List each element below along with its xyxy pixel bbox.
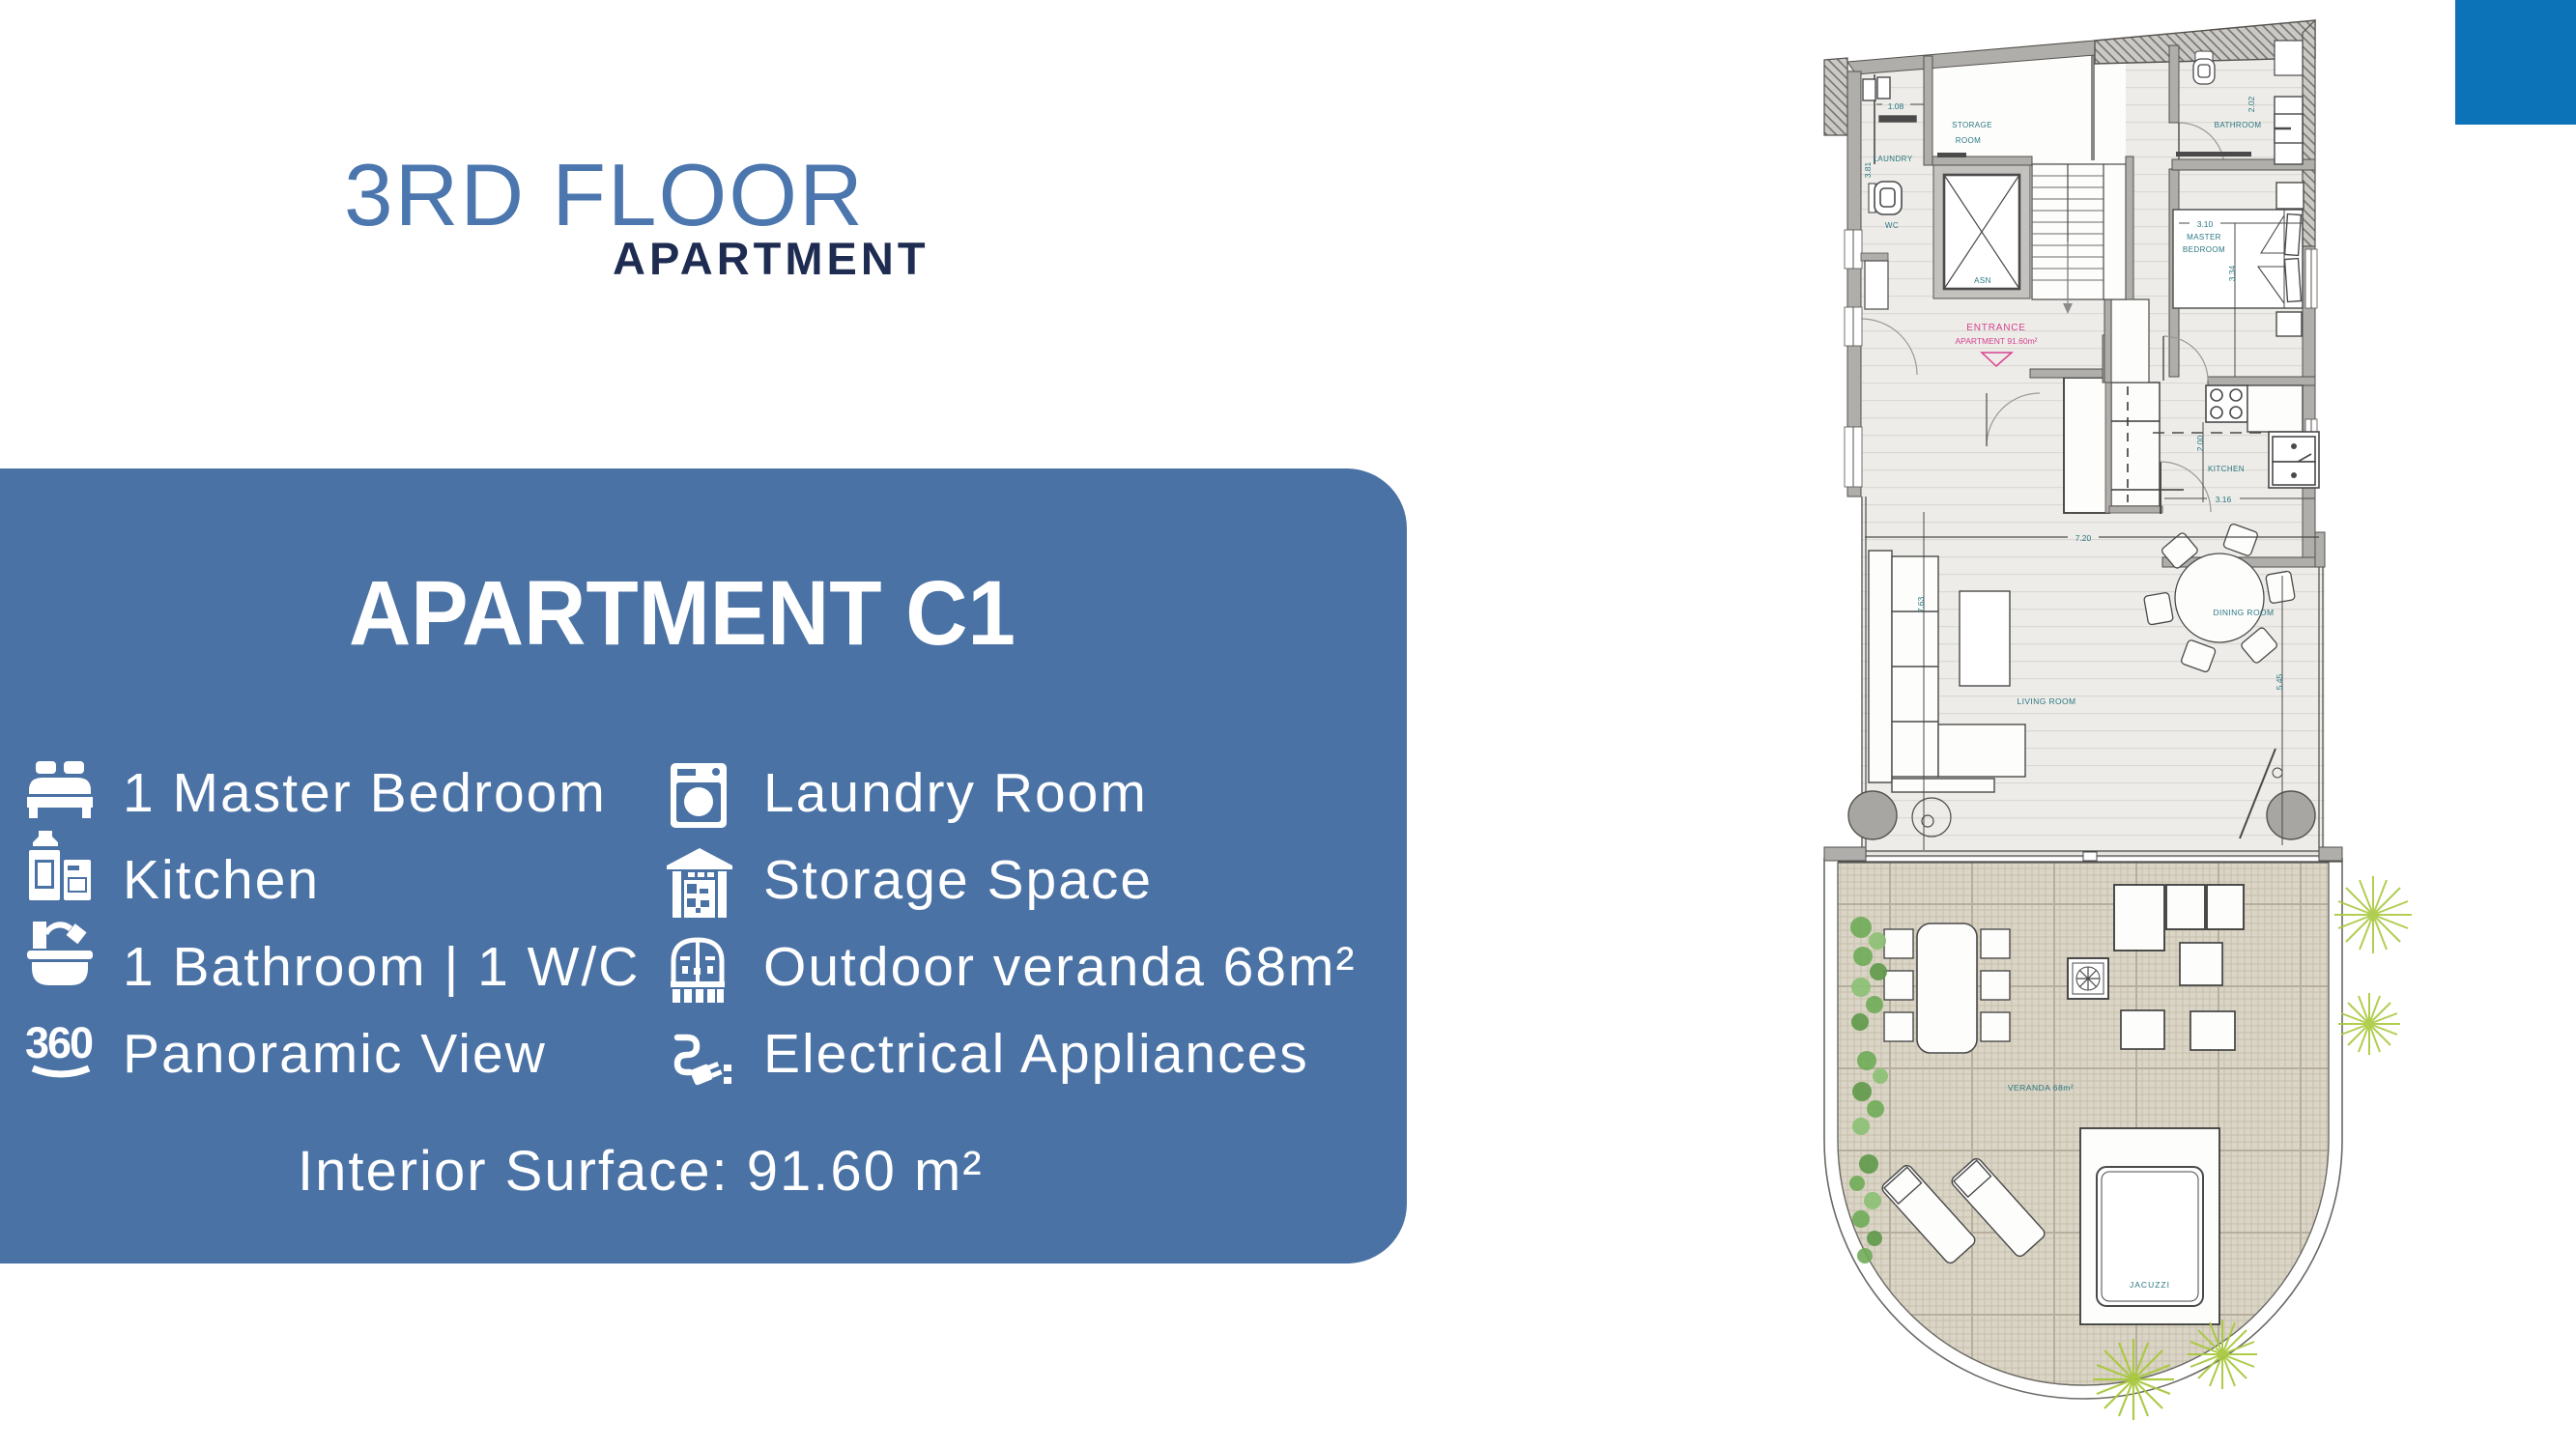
svg-text:2.00: 2.00 [2195, 435, 2205, 451]
svg-text:3.81: 3.81 [1863, 161, 1873, 178]
svg-text:BEDROOM: BEDROOM [2183, 245, 2225, 254]
svg-text:APARTMENT 91.60m²: APARTMENT 91.60m² [1955, 336, 2037, 346]
svg-text:2.02: 2.02 [2247, 96, 2256, 112]
svg-text:LAUNDRY: LAUNDRY [1874, 155, 1913, 163]
svg-text:7.20: 7.20 [2075, 533, 2092, 543]
svg-text:3.16: 3.16 [2216, 495, 2232, 504]
svg-text:WC: WC [1885, 221, 1899, 230]
svg-text:MASTER: MASTER [2187, 233, 2221, 241]
svg-text:VERANDA 68m²: VERANDA 68m² [2008, 1083, 2074, 1093]
svg-text:1.08: 1.08 [1888, 101, 1904, 111]
svg-text:BATHROOM: BATHROOM [2215, 121, 2262, 129]
svg-text:ROOM: ROOM [1956, 136, 1982, 145]
svg-text:5.45: 5.45 [2275, 673, 2284, 690]
svg-text:7.63: 7.63 [1916, 596, 1926, 612]
svg-text:STORAGE: STORAGE [1952, 121, 1992, 129]
svg-text:DINING ROOM: DINING ROOM [2214, 608, 2275, 617]
svg-text:JACUZZI: JACUZZI [2130, 1280, 2170, 1290]
svg-text:ENTRANCE: ENTRANCE [1966, 323, 2025, 333]
svg-text:LIVING ROOM: LIVING ROOM [2017, 696, 2075, 706]
svg-text:ASN: ASN [1974, 276, 1991, 285]
svg-text:3.10: 3.10 [2197, 219, 2214, 229]
svg-text:KITCHEN: KITCHEN [2208, 465, 2245, 473]
svg-text:3.34: 3.34 [2227, 265, 2237, 281]
